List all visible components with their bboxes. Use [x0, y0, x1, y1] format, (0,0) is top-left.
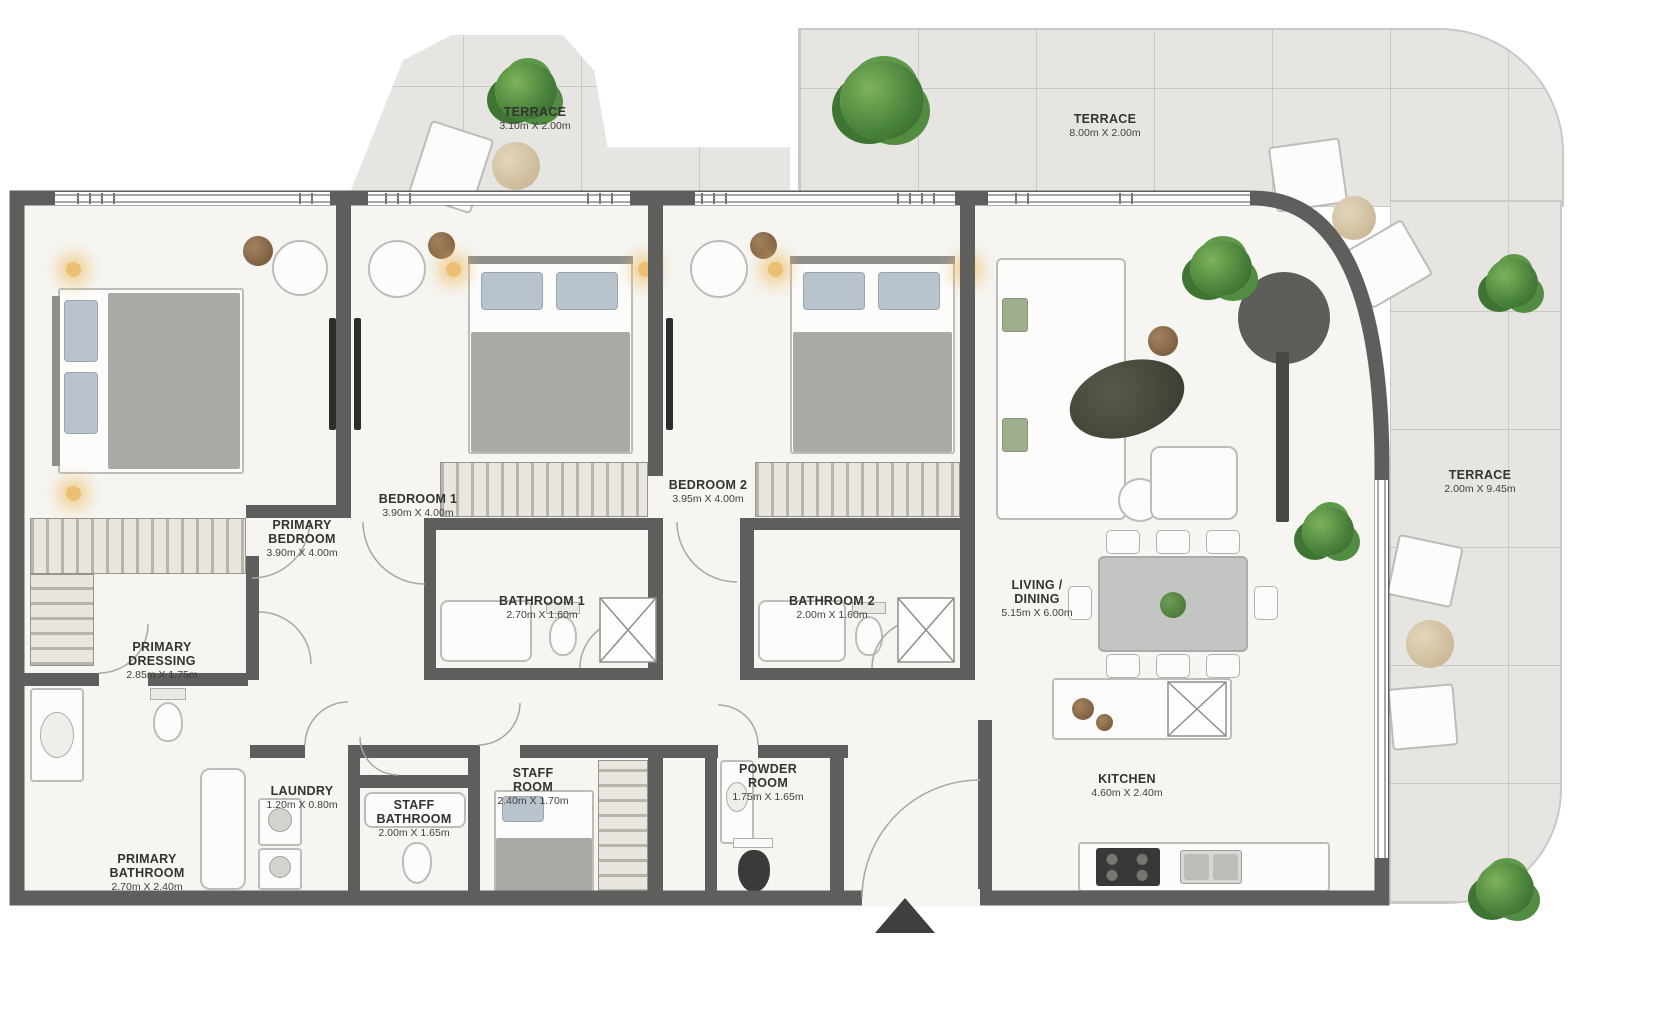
room-label-primary-bedroom: PRIMARY BEDROOM 3.90m X 4.00m [252, 518, 352, 559]
dining-chair [1206, 530, 1240, 554]
plant-icon [1476, 862, 1534, 916]
room-label-bedroom-1: BEDROOM 1 3.90m X 4.00m [358, 492, 478, 519]
sink-basin [1184, 854, 1209, 880]
wardrobe [755, 462, 960, 517]
bathtub [200, 768, 246, 890]
room-label-laundry: LAUNDRY 1.20m X 0.80m [252, 784, 352, 811]
bed-blanket [793, 332, 952, 452]
stove [1096, 848, 1160, 886]
plant-icon [840, 60, 924, 140]
pillow [803, 272, 865, 310]
toilet [549, 616, 577, 656]
bed-headboard [468, 256, 633, 264]
dining-chair [1156, 530, 1190, 554]
sink-basin [40, 712, 74, 758]
primary-bed-headboard [52, 296, 60, 466]
wardrobe [598, 760, 648, 893]
terrace-side-table [1332, 196, 1376, 240]
dining-chair [1206, 654, 1240, 678]
room-label-terrace-top-right: TERRACE 8.00m X 2.00m [1010, 112, 1200, 139]
room-label-living-dining: LIVING / DINING 5.15m X 6.00m [1000, 578, 1074, 619]
lamp-icon [960, 262, 975, 277]
lamp-icon [66, 486, 81, 501]
washer-door [268, 808, 292, 832]
floor-plan: TERRACE 3.10m X 2.00m TERRACE 8.00m X 2.… [0, 0, 1676, 1010]
toilet [153, 702, 183, 742]
plant-icon [1486, 258, 1538, 308]
room-label-kitchen: KITCHEN 4.60m X 2.40m [1062, 772, 1192, 799]
terrace-chair [1386, 534, 1463, 608]
side-table [428, 232, 455, 259]
sofa-pillow [1002, 418, 1028, 452]
bowl [1072, 698, 1094, 720]
side-table [750, 232, 777, 259]
tv-icon [329, 318, 336, 430]
pillow [556, 272, 618, 310]
room-label-terrace-top-left: TERRACE 3.10m X 2.00m [450, 105, 620, 132]
dining-chair [1106, 654, 1140, 678]
toilet-tank [733, 838, 773, 848]
terrace-side-table [1406, 620, 1454, 668]
dining-chair [1254, 586, 1278, 620]
dining-chair [1106, 530, 1140, 554]
tv-console [1276, 352, 1289, 522]
plant-icon [1302, 506, 1354, 556]
terrace-pouf [492, 142, 540, 190]
room-label-primary-bathroom: PRIMARY BATHROOM 2.70m X 2.40m [92, 852, 202, 893]
primary-bed-blanket [108, 293, 240, 469]
armchair [1150, 446, 1238, 520]
bed-blanket [471, 332, 630, 452]
tv-icon [666, 318, 673, 430]
toilet [402, 842, 432, 884]
lamp-icon [768, 262, 783, 277]
centerpiece [1160, 592, 1186, 618]
pillow [64, 372, 98, 434]
bedroom-armchair [368, 240, 426, 298]
pillow [878, 272, 940, 310]
room-label-bathroom-1: BATHROOM 1 2.70m X 1.60m [462, 594, 622, 621]
side-table [1148, 326, 1178, 356]
toilet [738, 850, 770, 892]
dining-chair [1156, 654, 1190, 678]
bedroom-armchair [690, 240, 748, 298]
side-table [243, 236, 273, 266]
dryer-door [269, 856, 291, 878]
plant-icon [1190, 240, 1252, 296]
bedroom-armchair [272, 240, 328, 296]
lamp-icon [66, 262, 81, 277]
sofa-pillow [1002, 298, 1028, 332]
round-rug [1238, 272, 1330, 364]
bed-headboard [790, 256, 955, 264]
pillow [64, 300, 98, 362]
room-label-staff-room: STAFF ROOM 2.40m X 1.70m [498, 766, 568, 807]
wardrobe [30, 574, 94, 666]
room-label-powder-room: POWDER ROOM 1.75m X 1.65m [728, 762, 808, 803]
pillow [481, 272, 543, 310]
room-label-bathroom-2: BATHROOM 2 2.00m X 1.60m [752, 594, 912, 621]
room-label-primary-dressing: PRIMARY DRESSING 2.85m X 1.75m [112, 640, 212, 681]
toilet [855, 616, 883, 656]
wardrobe [30, 518, 246, 574]
toilet-tank [150, 688, 186, 700]
terrace-chair [1268, 137, 1348, 212]
room-label-terrace-right: TERRACE 2.00m X 9.45m [1400, 468, 1560, 495]
tv-icon [354, 318, 361, 430]
bowl [1096, 714, 1113, 731]
lamp-icon [638, 262, 653, 277]
room-label-bedroom-2: BEDROOM 2 3.95m X 4.00m [648, 478, 768, 505]
lamp-icon [446, 262, 461, 277]
bed-blanket [496, 838, 592, 894]
terrace-chair [1387, 683, 1458, 751]
room-label-staff-bathroom: STAFF BATHROOM 2.00m X 1.65m [366, 798, 462, 839]
sink-basin [1213, 854, 1238, 880]
